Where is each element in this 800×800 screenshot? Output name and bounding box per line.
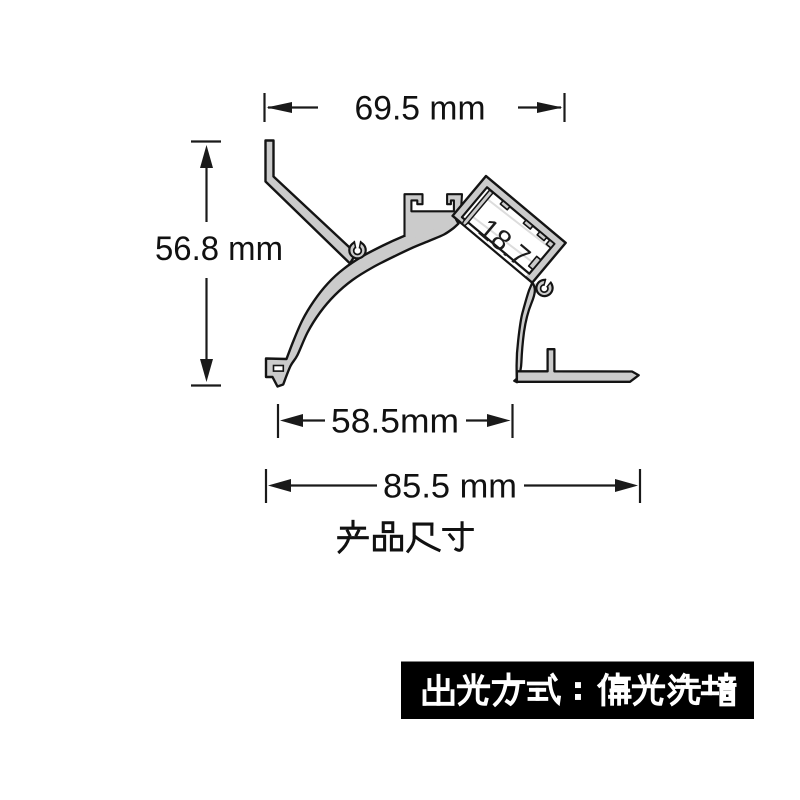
svg-text:56.8 mm: 56.8 mm	[155, 230, 283, 268]
svg-text:85.5 mm: 85.5 mm	[383, 468, 517, 506]
svg-text:58.5mm: 58.5mm	[331, 403, 459, 441]
svg-text:69.5 mm: 69.5 mm	[355, 90, 486, 128]
